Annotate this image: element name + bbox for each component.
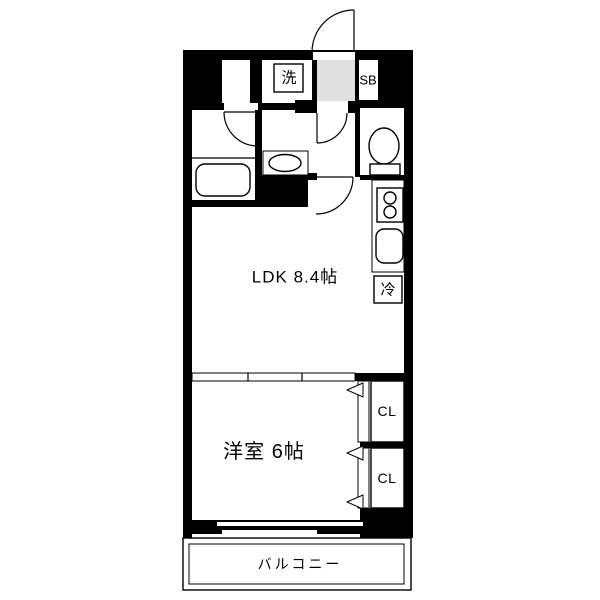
sliding-door-track <box>192 373 355 381</box>
closet-lower-label: CL <box>378 471 397 485</box>
bathroom-door-arc <box>224 112 258 146</box>
balcony-label: バルコニー <box>258 557 343 571</box>
entrance-door-arc <box>312 10 354 52</box>
wall-right <box>404 50 413 538</box>
folding-door-marker <box>347 383 363 397</box>
refrigerator-label: 冷 <box>380 283 395 298</box>
stove-burner <box>384 206 396 218</box>
ldk-door-arc <box>316 177 353 214</box>
kitchen-sink <box>376 229 403 263</box>
bathroom <box>190 158 255 196</box>
stove-burner <box>384 192 396 204</box>
bathroom-door-opening <box>224 103 258 110</box>
wall-bathroom-bottom <box>183 200 255 207</box>
wall-hall-toilet <box>355 108 360 177</box>
entrance-opening <box>313 52 355 60</box>
wall-bathroom-right <box>255 110 262 207</box>
wall-top-left-block <box>190 55 222 103</box>
wall-entry-left <box>312 59 317 103</box>
wall-partition-right <box>355 373 404 381</box>
ldk-label: LDK 8.4帖 <box>252 269 338 286</box>
sliding-partition <box>192 373 355 381</box>
window-slit-lower <box>222 530 317 535</box>
floor-plan: 洗 SB 冷 LDK 8.4帖 洋室 6帖 CL CL バルコニー <box>0 0 600 600</box>
shoe-box-label: SB <box>359 74 376 87</box>
western-room-label: 洋室 6帖 <box>223 442 305 462</box>
folding-door-marker <box>347 446 363 460</box>
window-slit-upper <box>217 522 363 526</box>
folding-door-marker <box>347 495 363 509</box>
wall-washroom-divider <box>250 55 262 103</box>
washing-machine-label: 洗 <box>281 71 296 86</box>
toilet-tank <box>370 164 400 175</box>
wall-ldk-door-jamb <box>308 173 317 180</box>
toilet-room <box>369 128 400 175</box>
wall-left <box>183 50 192 538</box>
wall-washroom-bottom <box>262 175 308 207</box>
floor-plan-drawing <box>0 0 600 600</box>
toilet-bowl <box>369 128 399 164</box>
wall-toilet-bottom <box>360 175 404 180</box>
hall-door-arc <box>317 113 347 143</box>
bathtub <box>196 164 250 196</box>
genkan-floor <box>317 60 355 101</box>
wall-toilet-top <box>357 100 404 108</box>
wall-between-closets <box>360 442 404 448</box>
closet-upper-label: CL <box>378 404 397 418</box>
wash-basin <box>269 155 301 172</box>
